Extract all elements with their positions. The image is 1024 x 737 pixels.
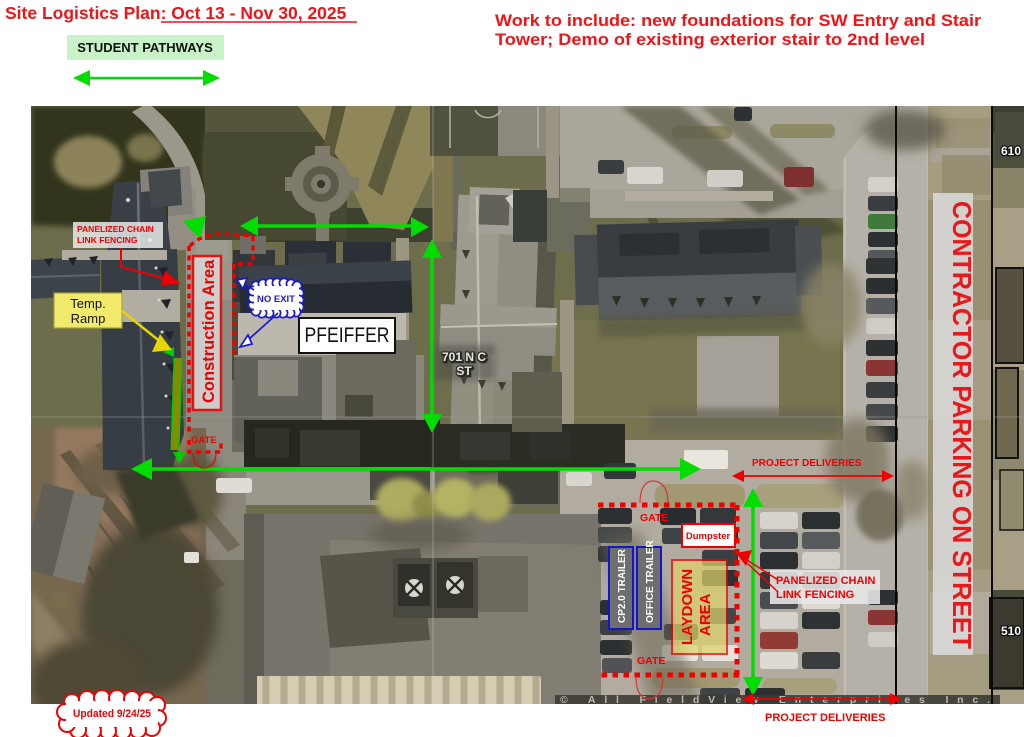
svg-text:510: 510 [1001, 624, 1021, 638]
svg-text:Construction Area: Construction Area [200, 259, 218, 403]
svg-text:CONTRACTOR PARKING ON STREET: CONTRACTOR PARKING ON STREET [947, 201, 977, 649]
svg-text:Updated 9/24/25: Updated 9/24/25 [73, 708, 151, 720]
svg-text:PFEIFFER: PFEIFFER [305, 324, 390, 347]
svg-text:PANELIZED CHAIN: PANELIZED CHAIN [776, 575, 875, 587]
svg-text:PROJECT DELIVERIES: PROJECT DELIVERIES [752, 458, 862, 469]
svg-text:AREA: AREA [697, 593, 714, 636]
svg-text:Ramp: Ramp [71, 311, 106, 326]
svg-text:GATE: GATE [191, 435, 217, 446]
svg-text:CP2.0 TRAILER: CP2.0 TRAILER [617, 548, 628, 623]
svg-text:701 N C: 701 N C [442, 350, 486, 364]
svg-text:LAYDOWN: LAYDOWN [679, 569, 696, 645]
svg-text:PROJECT DELIVERIES: PROJECT DELIVERIES [765, 712, 885, 724]
svg-text:PANELIZED CHAIN: PANELIZED CHAIN [77, 224, 154, 234]
svg-text:NO EXIT: NO EXIT [257, 294, 295, 305]
svg-text:610: 610 [1001, 144, 1021, 158]
svg-text:GATE: GATE [640, 512, 668, 524]
svg-text:Site Logistics Plan: Oct 13 -: Site Logistics Plan: Oct 13 - Nov 30, 20… [5, 3, 347, 23]
svg-text:OFFICE TRAILER: OFFICE TRAILER [645, 539, 656, 623]
svg-text:LINK FENCING: LINK FENCING [776, 589, 854, 601]
svg-text:LINK FENCING: LINK FENCING [77, 235, 138, 245]
svg-text:ST: ST [456, 364, 472, 378]
svg-text:STUDENT PATHWAYS: STUDENT PATHWAYS [77, 40, 213, 55]
svg-text:Tower; Demo of existing exteri: Tower; Demo of existing exterior stair t… [495, 30, 925, 49]
svg-text:Work to include: new foundatio: Work to include: new foundations for SW … [495, 11, 981, 30]
svg-text:Dumpster: Dumpster [686, 531, 731, 542]
svg-text:Temp.: Temp. [70, 296, 105, 311]
svg-text:GATE: GATE [637, 655, 665, 667]
